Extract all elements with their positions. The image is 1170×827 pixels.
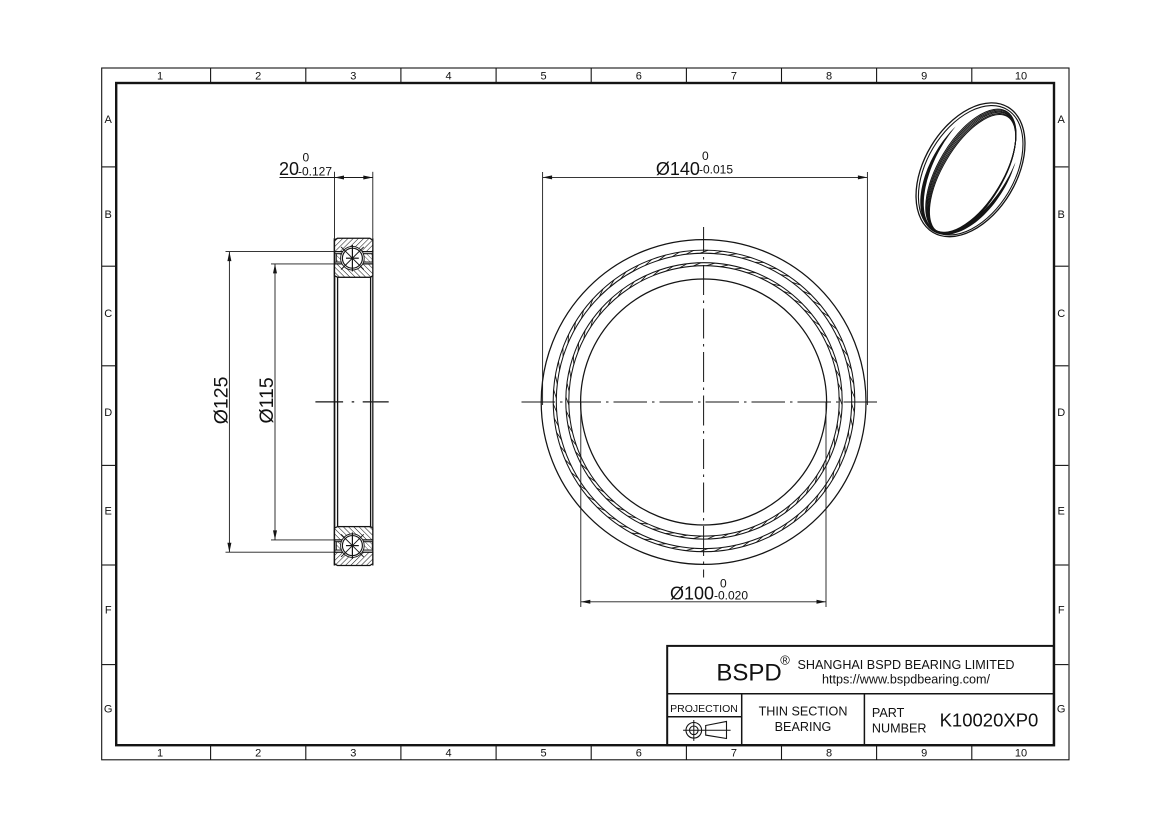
svg-text:0: 0	[702, 149, 709, 163]
svg-text:20: 20	[279, 159, 299, 179]
svg-text:G: G	[1057, 704, 1066, 716]
svg-text:PART: PART	[872, 706, 905, 720]
svg-text:Ø115: Ø115	[256, 377, 278, 423]
svg-text:B: B	[1058, 209, 1065, 221]
svg-text:®: ®	[780, 652, 790, 667]
svg-text:E: E	[105, 506, 112, 518]
svg-text:https://www.bspdbearing.com/: https://www.bspdbearing.com/	[822, 672, 990, 686]
svg-text:10: 10	[1015, 748, 1027, 760]
svg-text:PROJECTION: PROJECTION	[670, 703, 738, 715]
svg-text:C: C	[104, 308, 112, 320]
svg-text:6: 6	[636, 748, 642, 760]
svg-text:5: 5	[541, 748, 547, 760]
svg-text:K10020XP0: K10020XP0	[940, 709, 1039, 730]
svg-text:2: 2	[255, 748, 261, 760]
svg-text:3: 3	[350, 70, 356, 82]
svg-text:1: 1	[157, 748, 163, 760]
svg-text:G: G	[104, 704, 113, 716]
svg-text:F: F	[1058, 605, 1065, 617]
svg-text:6: 6	[636, 70, 642, 82]
svg-text:4: 4	[445, 70, 451, 82]
svg-text:7: 7	[731, 748, 737, 760]
svg-text:5: 5	[541, 70, 547, 82]
svg-text:A: A	[1058, 114, 1066, 126]
svg-text:-0.020: -0.020	[714, 589, 748, 603]
svg-text:9: 9	[921, 70, 927, 82]
svg-text:9: 9	[921, 748, 927, 760]
svg-text:C: C	[1057, 308, 1065, 320]
svg-text:Ø125: Ø125	[211, 376, 233, 424]
svg-text:10: 10	[1015, 70, 1027, 82]
svg-text:0: 0	[303, 150, 310, 164]
svg-text:7: 7	[731, 70, 737, 82]
svg-text:4: 4	[445, 748, 451, 760]
svg-text:THIN SECTION: THIN SECTION	[759, 705, 848, 719]
svg-text:8: 8	[826, 748, 832, 760]
svg-text:B: B	[105, 209, 112, 221]
svg-text:Ø140: Ø140	[656, 159, 700, 179]
svg-text:-0.127: -0.127	[298, 164, 332, 178]
svg-text:8: 8	[826, 70, 832, 82]
svg-text:F: F	[105, 605, 112, 617]
svg-text:3: 3	[350, 748, 356, 760]
svg-text:1: 1	[157, 70, 163, 82]
svg-text:D: D	[104, 407, 112, 419]
svg-text:SHANGHAI BSPD BEARING LIMITED: SHANGHAI BSPD BEARING LIMITED	[798, 658, 1015, 672]
svg-text:D: D	[1057, 407, 1065, 419]
svg-text:A: A	[105, 114, 113, 126]
svg-text:NUMBER: NUMBER	[872, 721, 927, 735]
svg-text:BSPD: BSPD	[716, 659, 781, 686]
svg-text:E: E	[1058, 506, 1065, 518]
svg-text:-0.015: -0.015	[699, 162, 733, 176]
svg-text:BEARING: BEARING	[775, 720, 832, 734]
svg-text:Ø100: Ø100	[670, 584, 714, 604]
svg-text:2: 2	[255, 70, 261, 82]
